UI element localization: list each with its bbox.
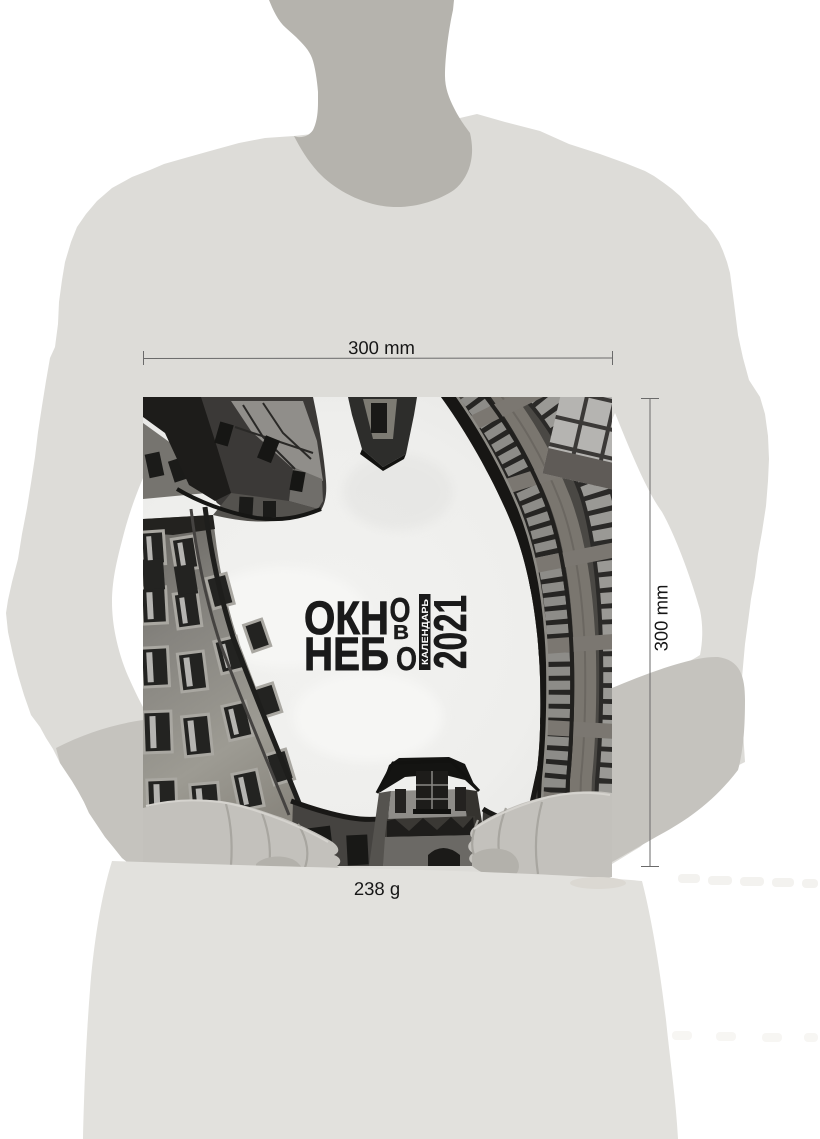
svg-text:2021: 2021	[424, 595, 476, 669]
svg-text:О: О	[396, 640, 417, 677]
svg-text:300 mm: 300 mm	[348, 337, 415, 358]
svg-text:300 mm: 300 mm	[651, 585, 672, 652]
svg-text:238 g: 238 g	[354, 878, 400, 899]
svg-text:НЕБ: НЕБ	[304, 627, 389, 680]
